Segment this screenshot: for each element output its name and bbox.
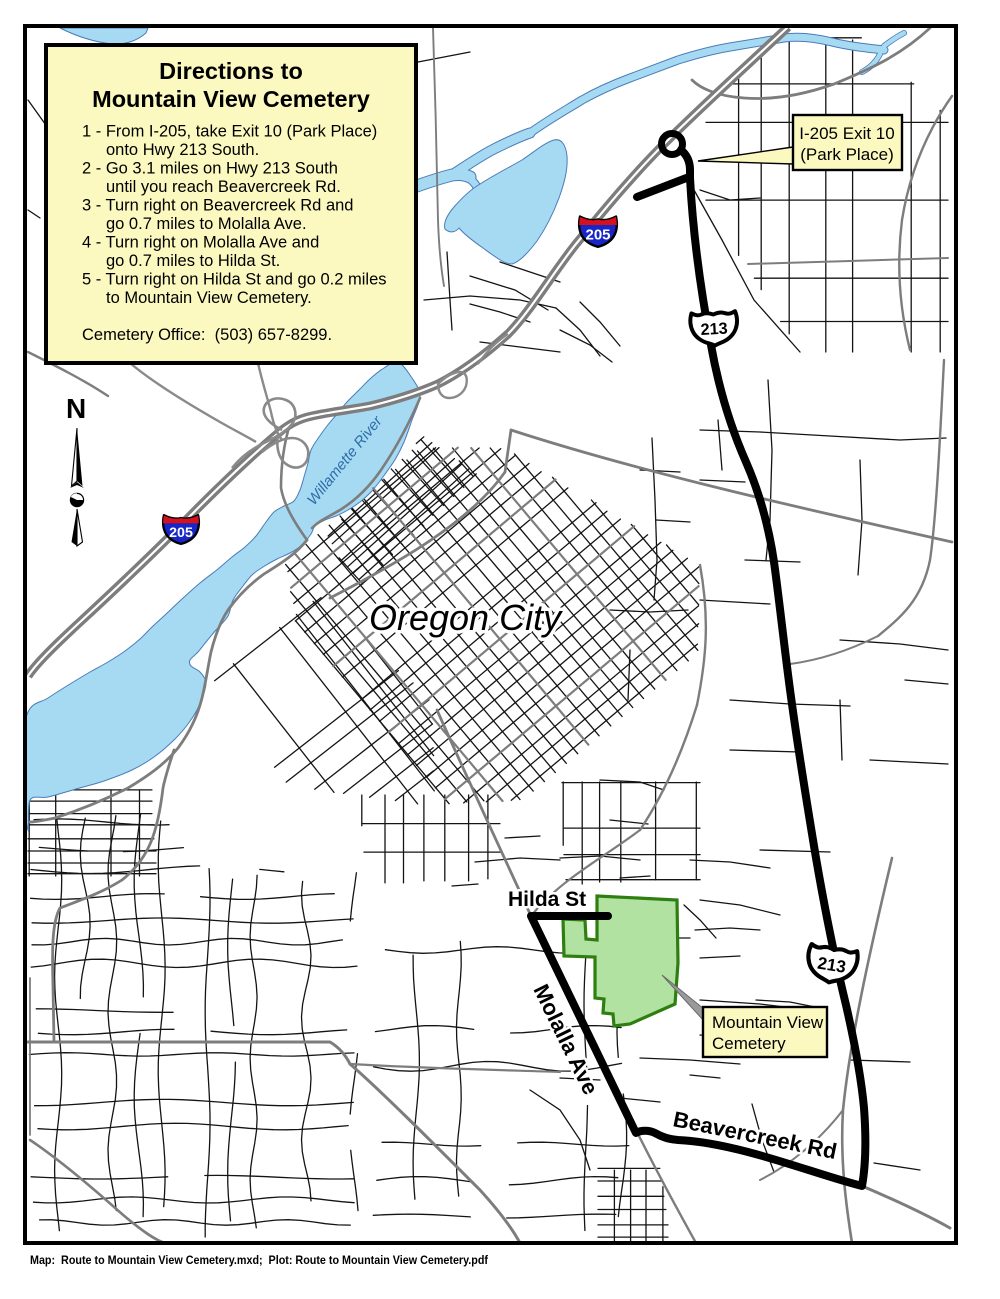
svg-text:Hilda St: Hilda St [508, 888, 586, 911]
svg-text:(Park Place): (Park Place) [800, 145, 894, 164]
svg-text:N: N [66, 393, 86, 424]
svg-text:205: 205 [585, 227, 610, 244]
svg-text:205: 205 [169, 525, 193, 541]
svg-text:I-205 Exit 10: I-205 Exit 10 [799, 124, 894, 143]
svg-text:213: 213 [700, 320, 728, 339]
svg-text:4 - Turn right on Molalla Ave: 4 - Turn right on Molalla Ave and [82, 234, 319, 252]
svg-text:until you reach Beavercreek Rd: until you reach Beavercreek Rd. [106, 178, 341, 196]
svg-text:Map: Route to Mountain View C: Map: Route to Mountain View Cemetery.mxd… [30, 1253, 489, 1267]
svg-text:to Mountain View Cemetery.: to Mountain View Cemetery. [106, 289, 312, 307]
svg-text:1 - From I-205, take Exit 10 (: 1 - From I-205, take Exit 10 (Park Place… [82, 123, 377, 141]
svg-text:onto Hwy 213 South.: onto Hwy 213 South. [106, 141, 259, 159]
svg-text:go 0.7 miles to Molalla Ave.: go 0.7 miles to Molalla Ave. [106, 215, 307, 233]
svg-text:Mountain View: Mountain View [712, 1013, 824, 1032]
svg-text:3 - Turn right on Beavercreek: 3 - Turn right on Beavercreek Rd and [82, 197, 353, 215]
svg-text:Cemetery Office: (503) 657-82: Cemetery Office: (503) 657-8299. [82, 326, 332, 344]
svg-text:go 0.7 miles to Hilda St.: go 0.7 miles to Hilda St. [106, 252, 280, 270]
svg-text:Mountain View Cemetery: Mountain View Cemetery [92, 86, 370, 112]
svg-text:5 - Turn right on Hilda St and: 5 - Turn right on Hilda St and go 0.2 mi… [82, 271, 387, 289]
svg-text:2 - Go 3.1 miles on Hwy 213 So: 2 - Go 3.1 miles on Hwy 213 South [82, 160, 338, 178]
svg-text:Directions to: Directions to [159, 58, 303, 84]
svg-text:Cemetery: Cemetery [712, 1034, 786, 1053]
svg-text:Oregon City: Oregon City [369, 597, 563, 638]
